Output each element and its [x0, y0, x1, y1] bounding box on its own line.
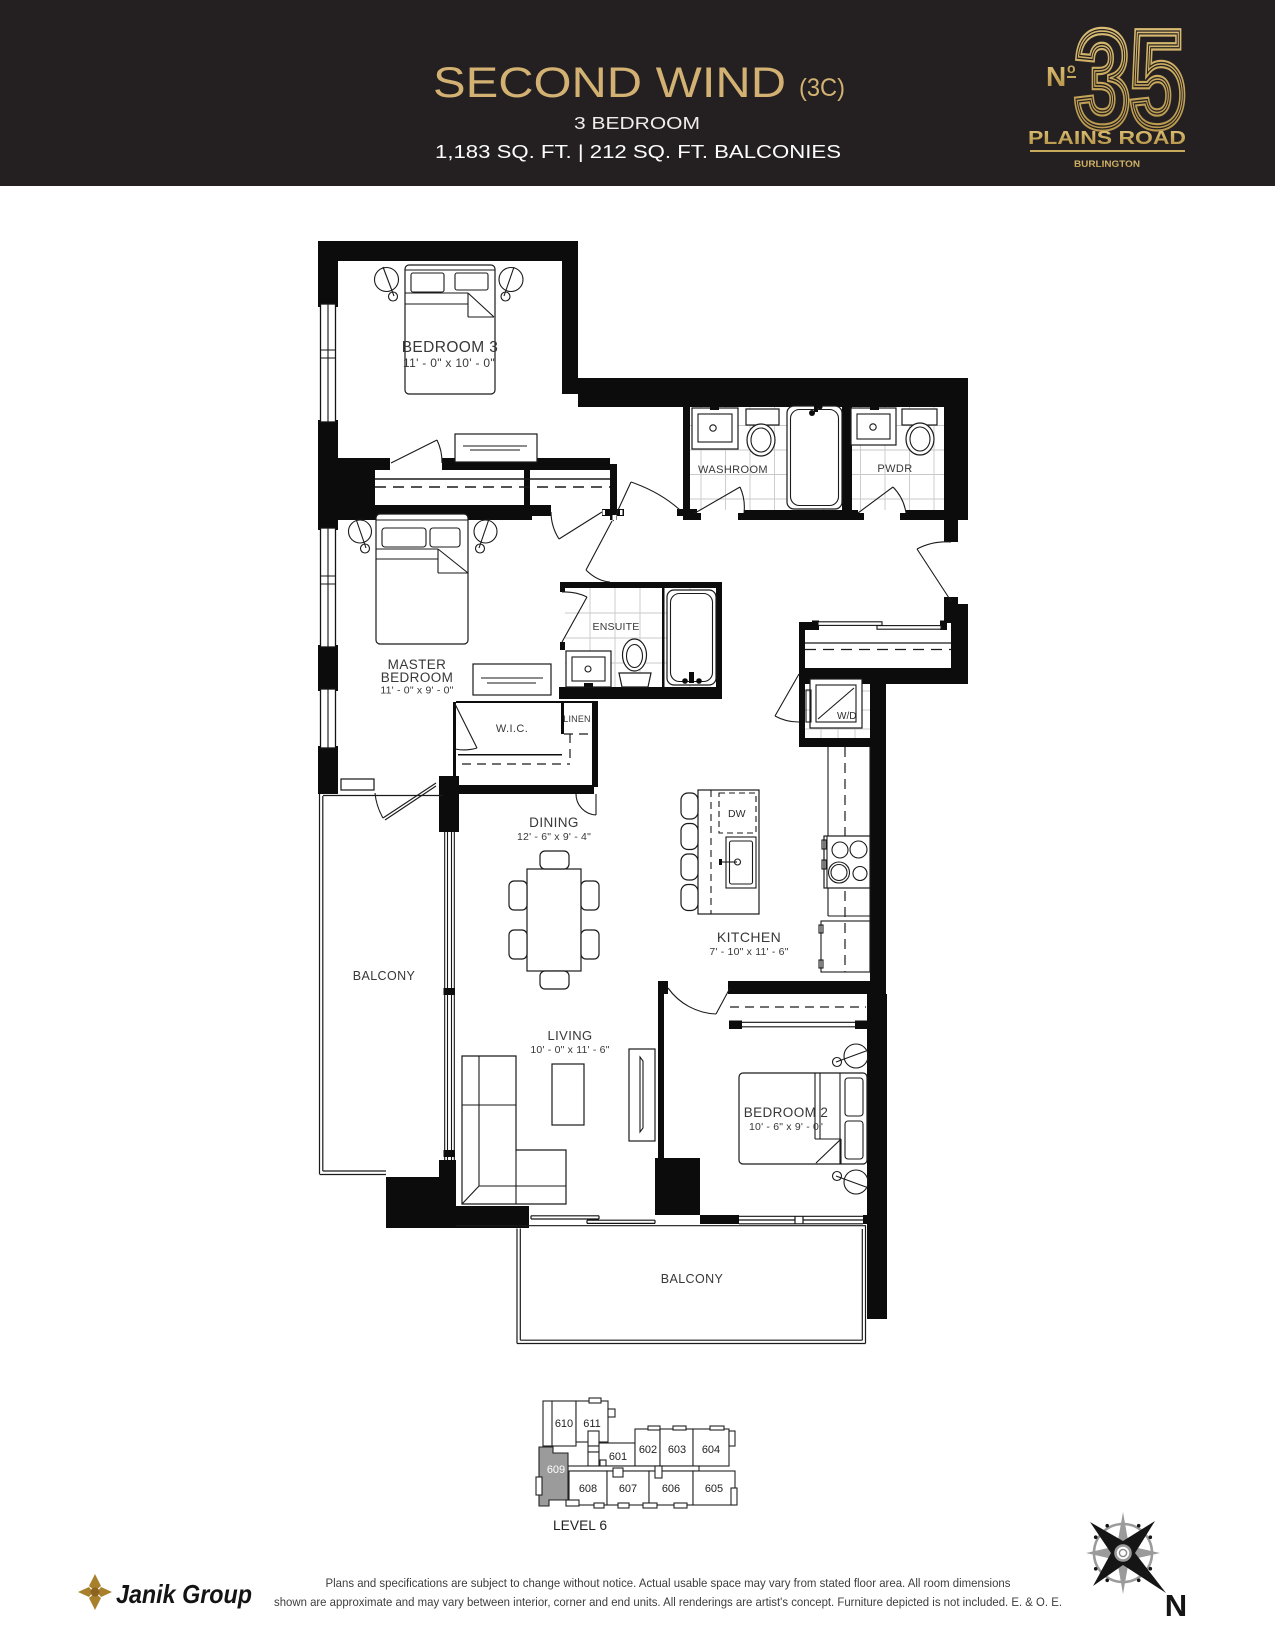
svg-text:603: 603	[668, 1444, 686, 1456]
svg-text:BALCONY: BALCONY	[661, 1272, 724, 1286]
svg-text:610: 610	[555, 1418, 573, 1430]
svg-text:BEDROOM: BEDROOM	[381, 670, 454, 685]
svg-text:BEDROOM 2: BEDROOM 2	[744, 1105, 829, 1120]
svg-text:DINING: DINING	[529, 815, 579, 830]
svg-text:BEDROOM 3: BEDROOM 3	[402, 339, 499, 356]
svg-text:PLAINS ROAD: PLAINS ROAD	[1028, 127, 1186, 148]
svg-text:607: 607	[619, 1483, 637, 1495]
svg-text:BURLINGTON: BURLINGTON	[1074, 159, 1140, 170]
svg-text:LINEN: LINEN	[563, 714, 591, 724]
svg-text:11' - 0" x 9' - 0": 11' - 0" x 9' - 0"	[380, 685, 453, 697]
svg-text:10' - 6" x 9' - 0": 10' - 6" x 9' - 0"	[749, 1121, 823, 1133]
svg-text:7' - 10" x 11' - 6": 7' - 10" x 11' - 6"	[709, 946, 788, 958]
svg-text:(3C): (3C)	[799, 74, 845, 102]
svg-text:KITCHEN: KITCHEN	[717, 929, 781, 945]
svg-text:W/D: W/D	[837, 711, 856, 722]
svg-text:Plans and specifications are s: Plans and specifications are subject to …	[326, 1576, 1011, 1590]
svg-text:ENSUITE: ENSUITE	[593, 621, 640, 633]
svg-text:11' - 0" x 10' - 0": 11' - 0" x 10' - 0"	[403, 356, 495, 370]
svg-text:605: 605	[705, 1483, 723, 1495]
svg-text:1,183 SQ. FT. | 212 SQ. FT.: 1,183 SQ. FT. | 212 SQ. FT. BALCONIES	[435, 142, 841, 162]
svg-text:N: N	[1046, 61, 1066, 92]
svg-text:Janik Group: Janik Group	[116, 1579, 252, 1609]
svg-text:W.I.C.: W.I.C.	[496, 723, 528, 735]
svg-text:DW: DW	[728, 808, 746, 820]
svg-text:shown are approximate and may: shown are approximate and may vary betwe…	[274, 1595, 1062, 1609]
svg-text:BALCONY: BALCONY	[353, 969, 416, 983]
svg-text:609: 609	[547, 1464, 565, 1476]
svg-text:602: 602	[639, 1444, 657, 1456]
svg-text:611: 611	[583, 1418, 601, 1430]
svg-text:606: 606	[662, 1483, 680, 1495]
svg-text:LIVING: LIVING	[547, 1028, 592, 1043]
svg-text:601: 601	[609, 1451, 627, 1463]
svg-text:PWDR: PWDR	[877, 463, 912, 475]
svg-text:N: N	[1165, 1588, 1187, 1623]
svg-text:LEVEL 6: LEVEL 6	[553, 1517, 607, 1533]
svg-text:608: 608	[579, 1483, 597, 1495]
svg-text:3 BEDROOM: 3 BEDROOM	[574, 113, 700, 133]
svg-text:604: 604	[702, 1444, 720, 1456]
svg-text:WASHROOM: WASHROOM	[698, 464, 768, 476]
svg-text:SECOND WIND: SECOND WIND	[433, 59, 786, 107]
svg-text:10' - 0" x 11' - 6": 10' - 0" x 11' - 6"	[530, 1044, 609, 1056]
svg-text:12' - 6" x 9' - 4": 12' - 6" x 9' - 4"	[517, 831, 591, 843]
